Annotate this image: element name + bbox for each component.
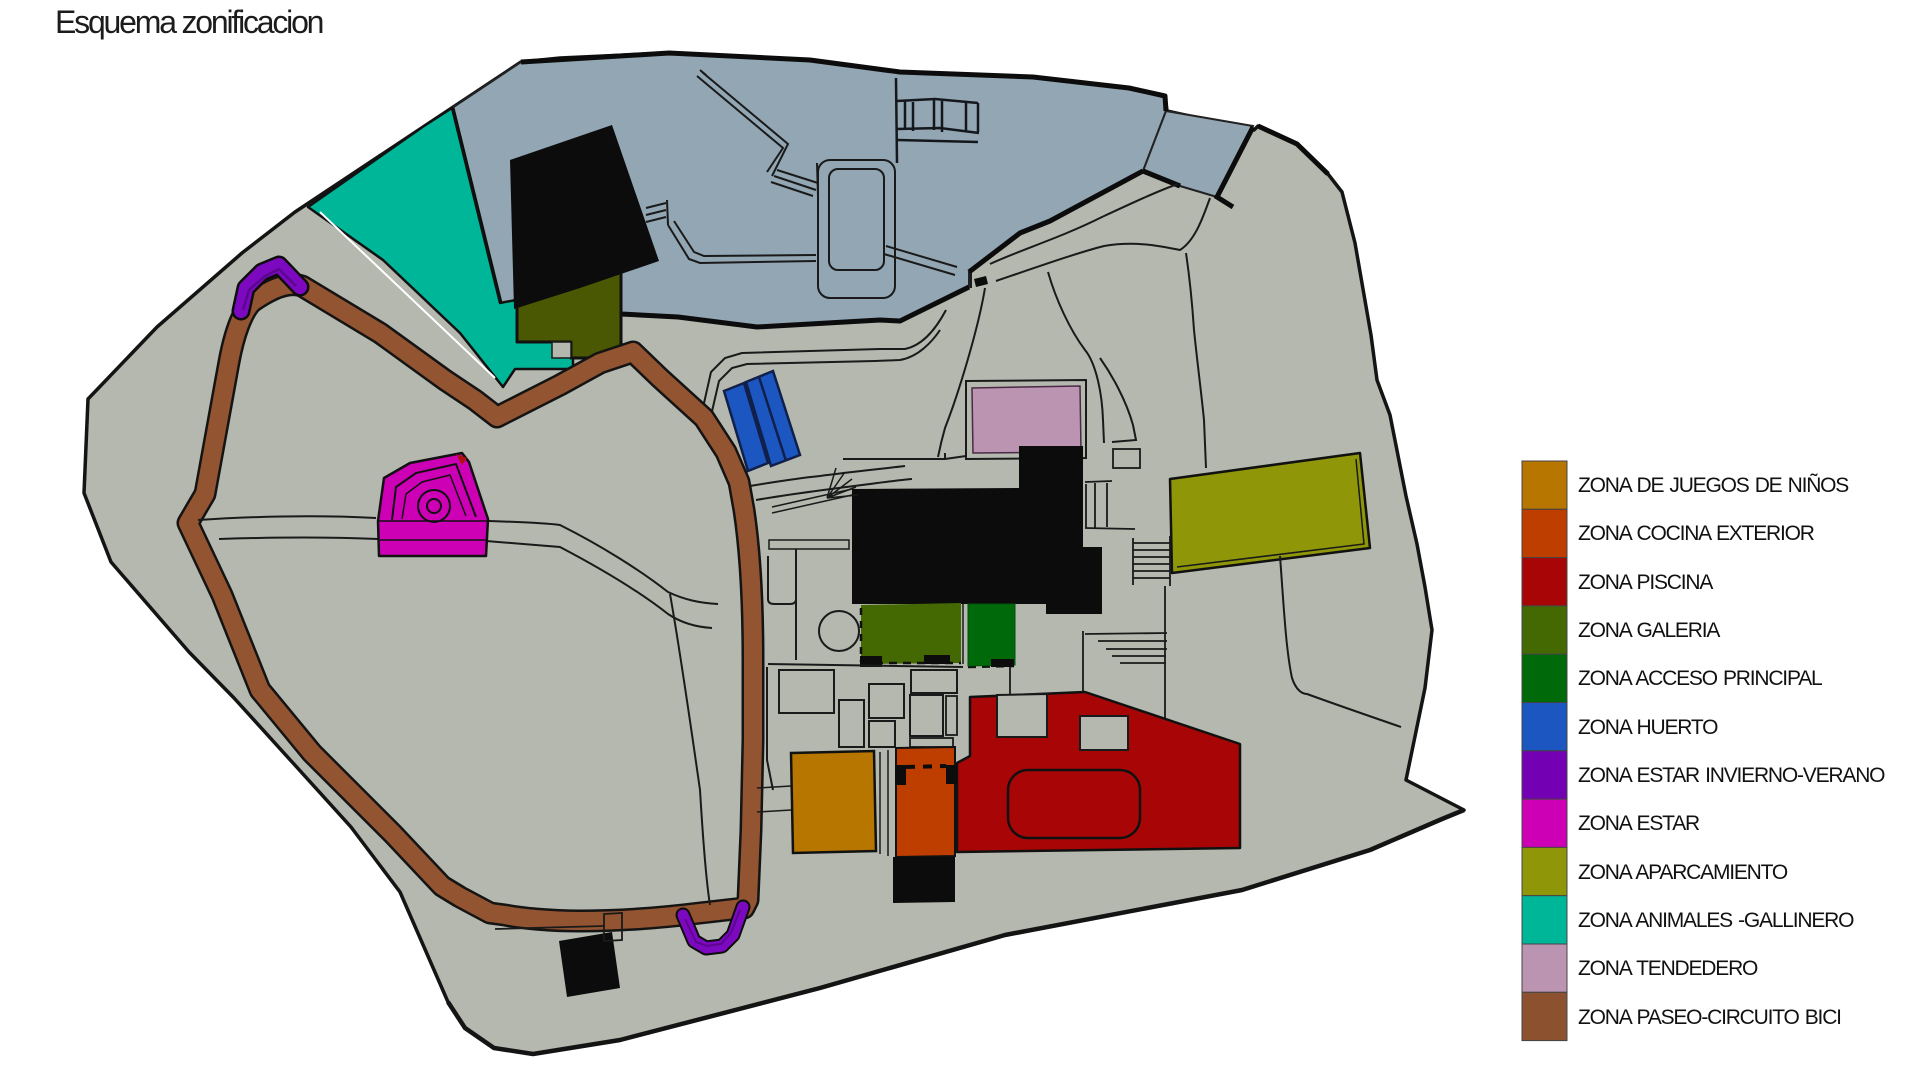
svg-text:ZONA ESTAR: ZONA ESTAR — [1578, 812, 1700, 835]
svg-text:ZONA ANIMALES -GALLINERO: ZONA ANIMALES -GALLINERO — [1578, 909, 1854, 932]
svg-text:ZONA DE JUEGOS DE NIÑOS: ZONA DE JUEGOS DE NIÑOS — [1578, 473, 1849, 497]
svg-text:Esquema zonificacion: Esquema zonificacion — [55, 4, 323, 40]
svg-text:ZONA PISCINA: ZONA PISCINA — [1578, 571, 1713, 594]
svg-text:ZONA TENDEDERO: ZONA TENDEDERO — [1578, 957, 1758, 980]
svg-text:ZONA COCINA EXTERIOR: ZONA COCINA EXTERIOR — [1578, 522, 1815, 545]
svg-text:ZONA GALERIA: ZONA GALERIA — [1578, 619, 1720, 642]
svg-text:ZONA ACCESO PRINCIPAL: ZONA ACCESO PRINCIPAL — [1578, 667, 1822, 690]
svg-text:ZONA PASEO-CIRCUITO BICI: ZONA PASEO-CIRCUITO BICI — [1578, 1006, 1841, 1029]
svg-text:ZONA HUERTO: ZONA HUERTO — [1578, 716, 1718, 739]
svg-text:ZONA ESTAR INVIERNO-VERANO: ZONA ESTAR INVIERNO-VERANO — [1578, 764, 1885, 787]
svg-text:ZONA APARCAMIENTO: ZONA APARCAMIENTO — [1578, 861, 1788, 884]
